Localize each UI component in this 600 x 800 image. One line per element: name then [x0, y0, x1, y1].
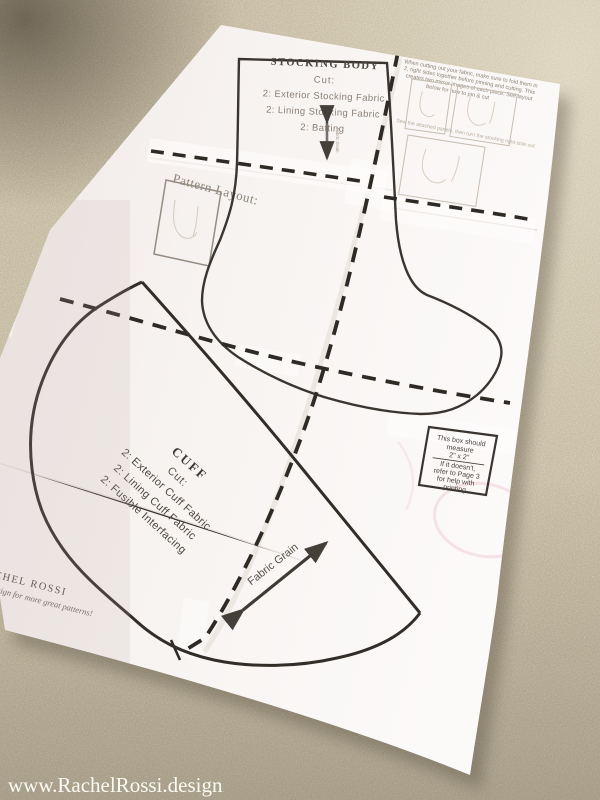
stocking-grain-label: Fabric Grain	[335, 128, 340, 153]
watermark-text: www.RachelRossi.design	[8, 773, 223, 797]
stocking-cut-label: Cut:	[313, 75, 335, 87]
pattern-photo-canvas: When cutting out your fabric, make sure …	[0, 0, 600, 800]
photo-of-sewing-pattern: When cutting out your fabric, make sure …	[0, 0, 600, 800]
